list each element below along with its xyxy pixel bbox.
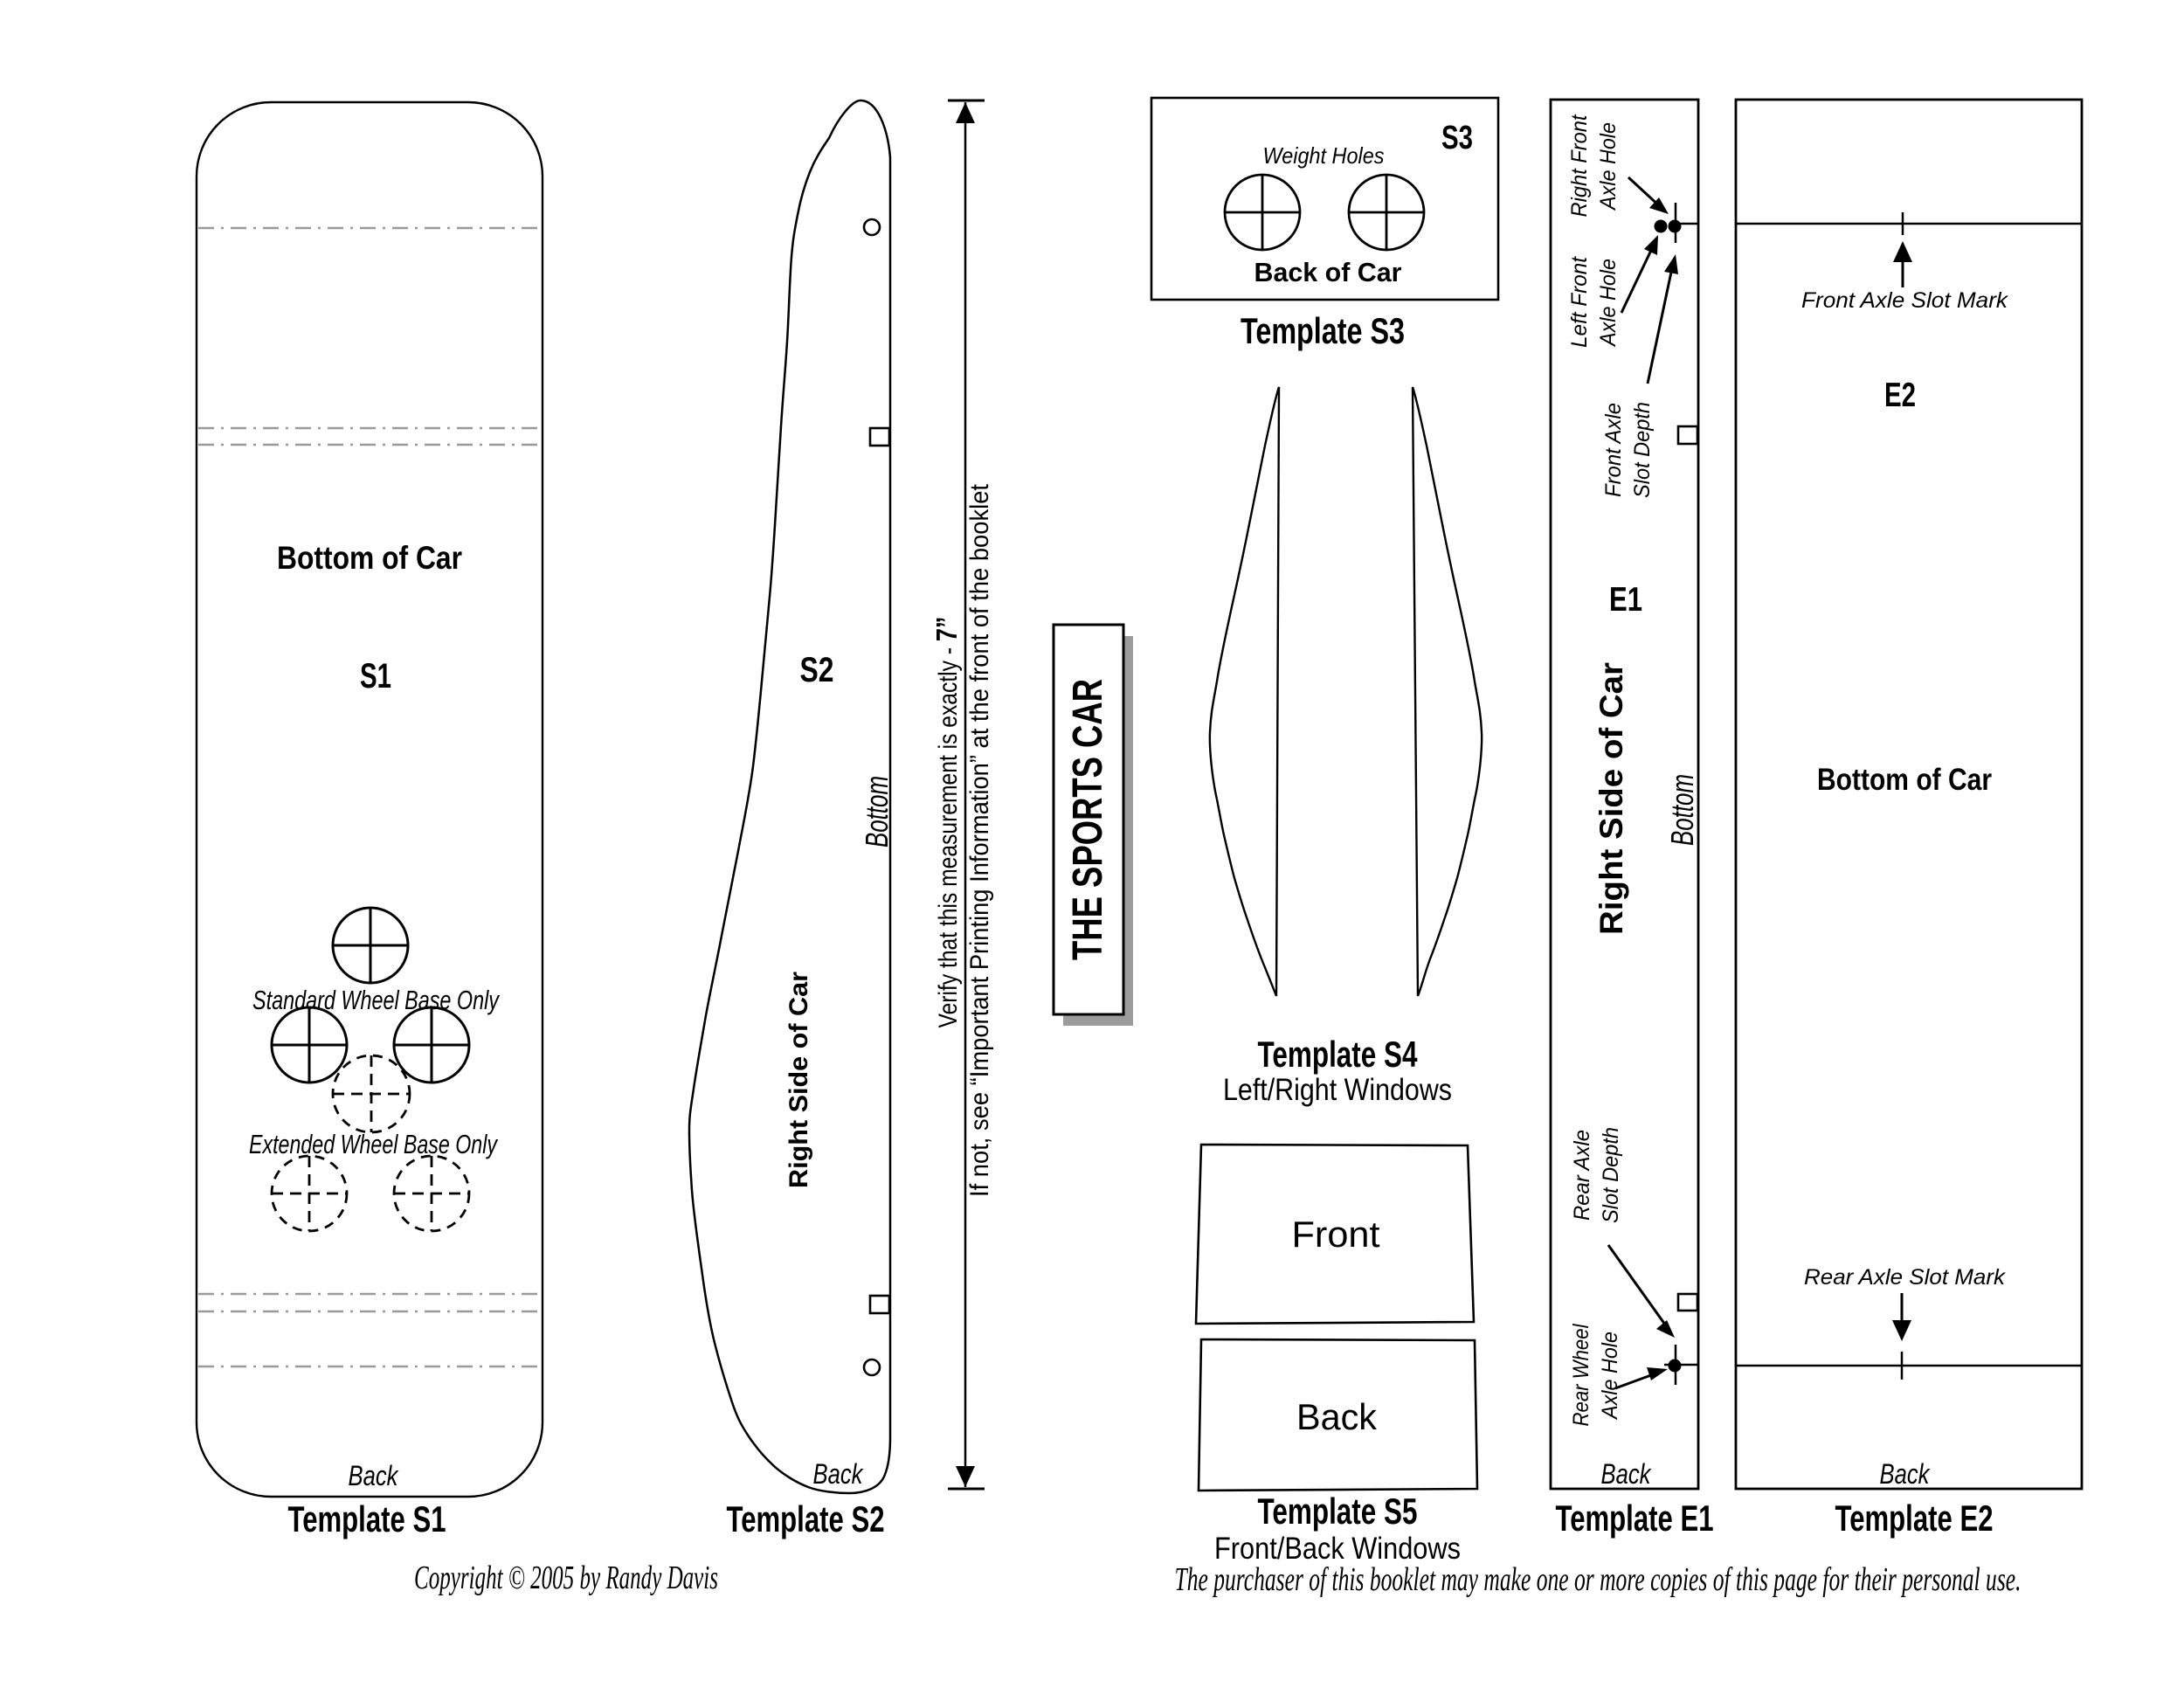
- svg-text:Copyright © 2005 by Randy Davi: Copyright © 2005 by Randy Davis: [414, 1560, 718, 1596]
- svg-text:E1: E1: [1609, 581, 1642, 619]
- svg-text:Left/Right Windows: Left/Right Windows: [1223, 1073, 1452, 1107]
- svg-text:Rear Axle Slot Mark: Rear Axle Slot Mark: [1804, 1265, 2007, 1290]
- svg-text:If not, see “Important Printin: If not, see “Important Printing Informat…: [965, 483, 994, 1197]
- svg-text:S1: S1: [360, 657, 391, 695]
- svg-text:Back: Back: [1880, 1458, 1932, 1490]
- svg-text:Template S2: Template S2: [727, 1498, 885, 1539]
- svg-text:Right Side of Car: Right Side of Car: [784, 972, 813, 1188]
- svg-text:Verify that this measurement i: Verify that this measurement is exactly …: [930, 617, 963, 1028]
- svg-text:Weight Holes: Weight Holes: [1263, 142, 1385, 169]
- svg-text:Front Axle Slot Mark: Front Axle Slot Mark: [1801, 288, 2009, 313]
- svg-text:Template E1: Template E1: [1556, 1498, 1714, 1539]
- svg-text:Bottom: Bottom: [859, 776, 895, 847]
- svg-text:Back: Back: [349, 1460, 400, 1491]
- svg-text:Bottom of Car: Bottom of Car: [277, 540, 462, 576]
- svg-text:Template S5: Template S5: [1258, 1491, 1418, 1532]
- svg-text:Template S4: Template S4: [1258, 1034, 1418, 1075]
- svg-text:THE SPORTS CAR: THE SPORTS CAR: [1065, 679, 1111, 960]
- svg-text:Back: Back: [813, 1458, 865, 1490]
- svg-text:Back: Back: [1296, 1396, 1378, 1437]
- svg-text:Standard Wheel Base Only: Standard Wheel Base Only: [252, 985, 501, 1015]
- svg-text:Template E2: Template E2: [1835, 1498, 1994, 1539]
- svg-text:Back: Back: [1601, 1458, 1653, 1490]
- svg-text:Template S1: Template S1: [288, 1498, 446, 1539]
- svg-text:S2: S2: [800, 651, 834, 689]
- svg-text:E2: E2: [1884, 377, 1916, 414]
- svg-text:Front: Front: [1292, 1214, 1380, 1255]
- svg-text:S3: S3: [1441, 120, 1473, 156]
- svg-text:The purchaser of this booklet: The purchaser of this booklet may make o…: [1175, 1561, 2022, 1598]
- svg-text:Extended Wheel Base Only: Extended Wheel Base Only: [249, 1129, 499, 1159]
- svg-text:Bottom of Car: Bottom of Car: [1817, 763, 1992, 797]
- svg-text:Bottom: Bottom: [1664, 774, 1700, 846]
- svg-text:Right Side of Car: Right Side of Car: [1593, 662, 1629, 935]
- svg-text:Back of Car: Back of Car: [1254, 257, 1402, 287]
- svg-text:Template S3: Template S3: [1241, 310, 1405, 351]
